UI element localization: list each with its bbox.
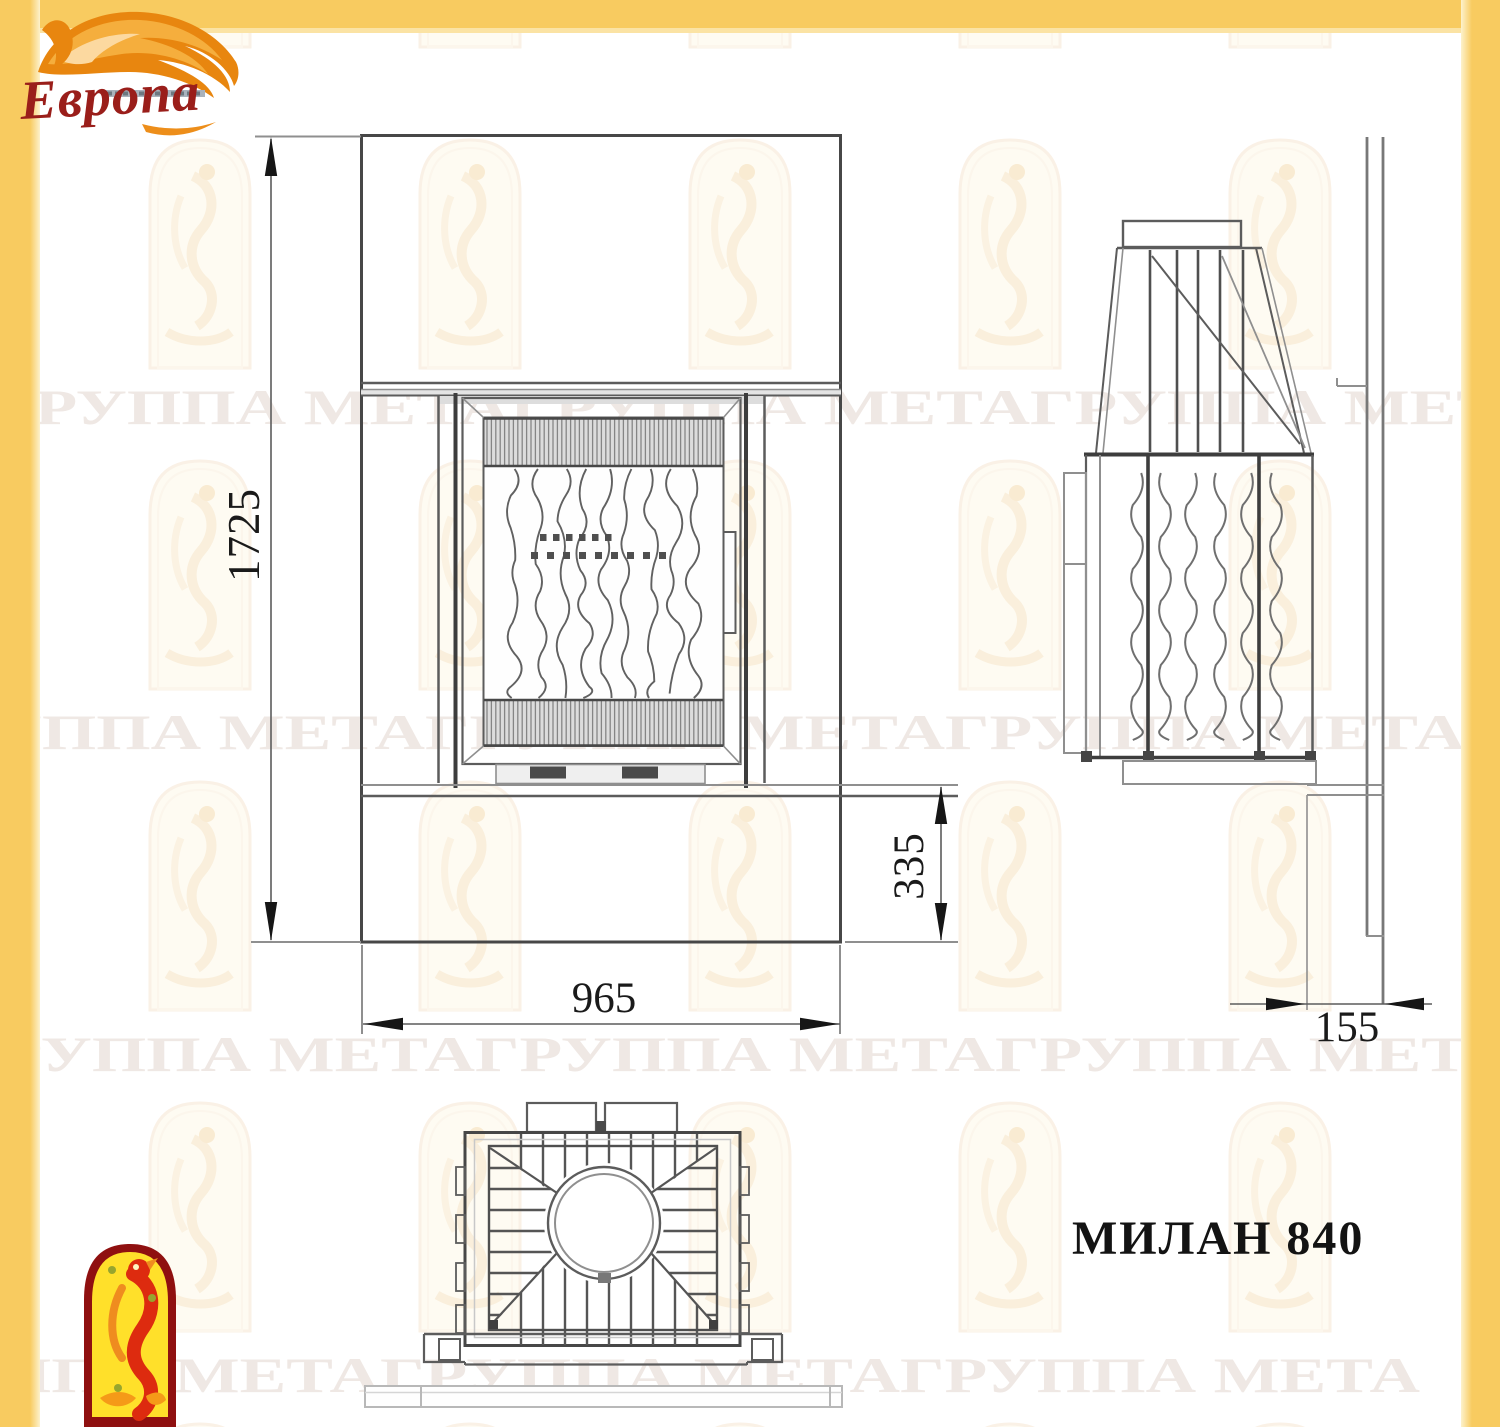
svg-text:ГРУППА МЕТАГРУППА МЕТАГРУППА М: ГРУППА МЕТАГРУППА МЕТАГРУППА МЕТА	[0, 704, 1465, 760]
svg-text:1725: 1725	[219, 488, 269, 582]
svg-text:ГРУППА МЕТАГРУППА МЕТАГРУППА М: ГРУППА МЕТАГРУППА МЕТАГРУППА МЕТА	[0, 1026, 1500, 1082]
svg-text:МИЛАН 840: МИЛАН 840	[1072, 1212, 1364, 1265]
svg-text:335: 335	[886, 832, 933, 900]
svg-text:965: 965	[572, 975, 637, 1022]
svg-text:155: 155	[1315, 1004, 1380, 1051]
svg-text:Европа: Европа	[17, 61, 201, 131]
svg-text:ГРУППА МЕТАГРУППА МЕТАГРУППА М: ГРУППА МЕТАГРУППА МЕТАГРУППА МЕТА	[0, 379, 1500, 435]
